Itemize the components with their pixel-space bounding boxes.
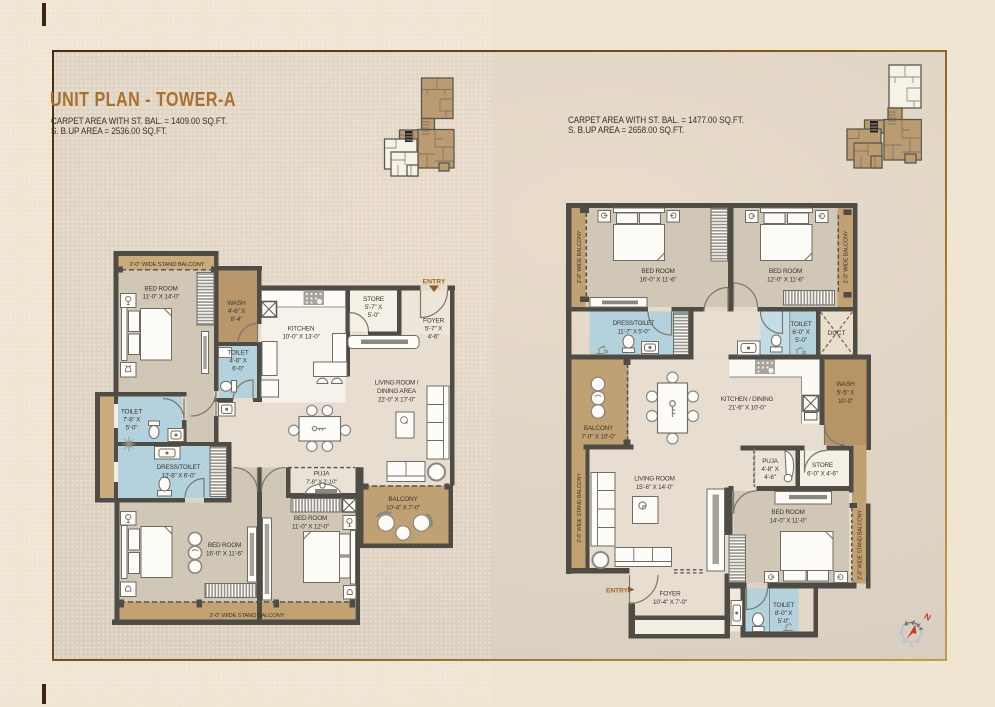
svg-text:ENTRY: ENTRY bbox=[606, 588, 629, 595]
svg-text:22'-0" X 17'-0": 22'-0" X 17'-0" bbox=[378, 397, 415, 404]
svg-text:5'-0": 5'-0" bbox=[778, 618, 790, 625]
svg-text:4'-6": 4'-6" bbox=[428, 334, 440, 341]
svg-text:KITCHEN: KITCHEN bbox=[288, 326, 315, 333]
svg-text:4'-6" X: 4'-6" X bbox=[228, 308, 246, 315]
svg-text:7'-8" X: 7'-8" X bbox=[123, 417, 141, 424]
svg-text:16'-0" X 11'-6": 16'-0" X 11'-6" bbox=[206, 551, 243, 558]
svg-text:LIVING ROOM: LIVING ROOM bbox=[634, 476, 674, 483]
svg-text:10'-4" X 7'-0": 10'-4" X 7'-0" bbox=[653, 599, 687, 606]
svg-text:21'-6" X 10'-0": 21'-6" X 10'-0" bbox=[728, 405, 765, 412]
svg-text:BALCONY: BALCONY bbox=[584, 425, 614, 432]
svg-text:BALCONY: BALCONY bbox=[388, 496, 418, 503]
svg-text:STORE: STORE bbox=[363, 296, 384, 303]
svg-text:TOILET: TOILET bbox=[790, 321, 811, 328]
svg-text:TOILET: TOILET bbox=[121, 409, 142, 416]
svg-text:7'-0" X 10'-0": 7'-0" X 10'-0" bbox=[581, 434, 615, 441]
svg-text:BED ROOM: BED ROOM bbox=[294, 515, 327, 522]
svg-text:11'-0" X 14'-0": 11'-0" X 14'-0" bbox=[143, 294, 180, 301]
svg-text:BED ROOM: BED ROOM bbox=[144, 286, 177, 293]
svg-text:8'-0" X: 8'-0" X bbox=[775, 610, 793, 617]
svg-text:N: N bbox=[923, 611, 933, 623]
svg-text:DINING AREA: DINING AREA bbox=[377, 388, 417, 395]
svg-text:10'-0": 10'-0" bbox=[838, 398, 853, 405]
svg-text:6'-0" X: 6'-0" X bbox=[792, 329, 810, 336]
svg-text:PUJA: PUJA bbox=[314, 471, 330, 478]
svg-text:2'-0" WIDE BALCONY: 2'-0" WIDE BALCONY bbox=[844, 230, 850, 283]
svg-text:PUJA: PUJA bbox=[762, 458, 778, 465]
svg-text:LIVING ROOM /: LIVING ROOM / bbox=[375, 380, 419, 387]
svg-text:8'-4": 8'-4" bbox=[231, 316, 243, 323]
svg-text:11'-7" X 5'-0": 11'-7" X 5'-0" bbox=[618, 329, 650, 336]
svg-text:KITCHEN / DINING: KITCHEN / DINING bbox=[721, 396, 774, 403]
svg-text:BED ROOM: BED ROOM bbox=[771, 509, 804, 516]
svg-text:FOYER: FOYER bbox=[423, 318, 445, 325]
svg-text:12'-8" X 6'-0": 12'-8" X 6'-0" bbox=[161, 473, 195, 480]
svg-text:14'-0" X 11'-0": 14'-0" X 11'-0" bbox=[770, 518, 807, 525]
svg-text:DRESS/TOILET: DRESS/TOILET bbox=[613, 320, 655, 327]
svg-text:BED ROOM: BED ROOM bbox=[208, 542, 241, 549]
svg-text:2'-0" WIDE STAND BALCONY: 2'-0" WIDE STAND BALCONY bbox=[577, 473, 583, 543]
svg-text:2'-0" WIDE STAND BALCONY: 2'-0" WIDE STAND BALCONY bbox=[858, 510, 864, 580]
svg-text:7'-8" X 2'-10": 7'-8" X 2'-10" bbox=[306, 480, 337, 486]
svg-text:2'-0" WIDE BALCONY: 2'-0" WIDE BALCONY bbox=[577, 230, 583, 283]
svg-text:4'-6" X: 4'-6" X bbox=[229, 358, 247, 365]
svg-text:WASH: WASH bbox=[836, 381, 855, 388]
svg-text:5'-5" X: 5'-5" X bbox=[837, 390, 855, 397]
svg-text:5'-0": 5'-0" bbox=[795, 337, 807, 344]
svg-text:DRESS/TOILET: DRESS/TOILET bbox=[157, 464, 201, 471]
svg-text:16'-0" X 11'-6": 16'-0" X 11'-6" bbox=[640, 277, 677, 284]
svg-text:12'-0" X 11'-6": 12'-0" X 11'-6" bbox=[767, 277, 804, 284]
svg-text:BED ROOM: BED ROOM bbox=[769, 268, 802, 275]
svg-text:FOYER: FOYER bbox=[659, 591, 681, 598]
svg-text:11'-0" X 12'-0": 11'-0" X 12'-0" bbox=[292, 524, 329, 531]
svg-text:DUCT: DUCT bbox=[828, 330, 846, 337]
svg-text:6'-0" X 4'-6": 6'-0" X 4'-6" bbox=[807, 471, 838, 478]
svg-text:5'-0": 5'-0" bbox=[126, 425, 138, 432]
svg-text:ENTRY: ENTRY bbox=[423, 279, 446, 286]
svg-text:2'-0" WIDE STAND BALCONY: 2'-0" WIDE STAND BALCONY bbox=[210, 613, 285, 619]
svg-text:4'-8" X: 4'-8" X bbox=[761, 466, 779, 473]
svg-text:5'-7" X: 5'-7" X bbox=[425, 326, 443, 333]
svg-text:5'-0": 5'-0" bbox=[368, 312, 380, 319]
svg-text:STORE: STORE bbox=[812, 462, 833, 469]
svg-text:TOILET: TOILET bbox=[227, 350, 248, 357]
svg-text:5'-7" X: 5'-7" X bbox=[365, 304, 383, 311]
svg-text:2'-0" WIDE STAND BALCONY: 2'-0" WIDE STAND BALCONY bbox=[130, 262, 205, 268]
svg-text:6'-0": 6'-0" bbox=[232, 366, 244, 373]
svg-text:WASH: WASH bbox=[227, 300, 246, 307]
svg-text:4'-6": 4'-6" bbox=[764, 474, 776, 481]
svg-text:TOILET: TOILET bbox=[773, 602, 794, 609]
svg-text:10'-0" X 13'-0": 10'-0" X 13'-0" bbox=[282, 334, 319, 341]
svg-text:10'-4" X 7'-0": 10'-4" X 7'-0" bbox=[386, 505, 420, 512]
svg-text:15'-6" X 14'-0": 15'-6" X 14'-0" bbox=[636, 484, 673, 491]
svg-text:BED ROOM: BED ROOM bbox=[641, 268, 674, 275]
